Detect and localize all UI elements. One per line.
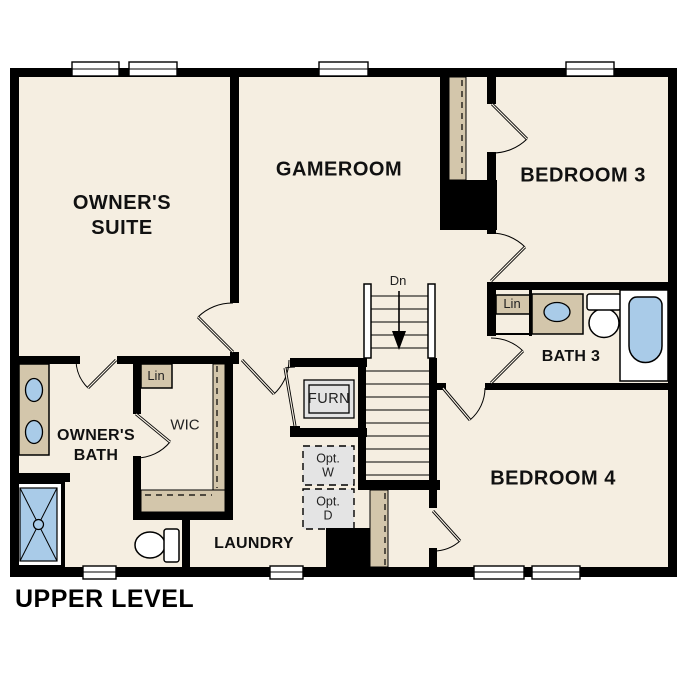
linen-label-wic: Lin [147, 368, 164, 384]
stair-rail [428, 284, 435, 358]
optional-washer-label: Opt. W [316, 452, 340, 481]
stair-rail [364, 284, 371, 358]
room-label-bedroom-3: BEDROOM 3 [520, 164, 646, 189]
furnace-label: FURN [308, 390, 350, 408]
room-label-gameroom: GAMEROOM [276, 158, 402, 183]
room-label-owners-bath: OWNER'S BATH [57, 426, 135, 466]
sink-icon [26, 421, 43, 444]
sink-icon [544, 303, 570, 322]
bathtub-fixture [620, 290, 668, 381]
bath3-toilet [587, 294, 621, 338]
sink-icon [26, 379, 43, 402]
stairs-down-label: Dn [390, 273, 407, 289]
linen-label-bath3: Lin [503, 296, 520, 312]
room-label-laundry: LAUNDRY [214, 534, 294, 554]
shower-fixture [14, 482, 63, 567]
floor-plan-drawing [0, 0, 687, 687]
floor-plan-page: OWNER'S SUITE GAMEROOM BEDROOM 3 BEDROOM… [0, 0, 687, 687]
chase-block [440, 180, 497, 230]
room-label-bedroom-4: BEDROOM 4 [490, 467, 616, 492]
plan-title: UPPER LEVEL [15, 585, 194, 614]
bath3-vanity [532, 294, 583, 334]
shower-drain-icon [34, 520, 44, 530]
bath3-linen-divider [496, 333, 530, 335]
room-label-bath-3: BATH 3 [542, 347, 600, 367]
optional-dryer-label: Opt. D [316, 495, 340, 524]
chase-block [326, 528, 370, 567]
owners-bath-vanity [19, 364, 49, 455]
room-label-wic: WIC [170, 417, 199, 436]
room-label-owners-suite: OWNER'S SUITE [73, 191, 171, 241]
